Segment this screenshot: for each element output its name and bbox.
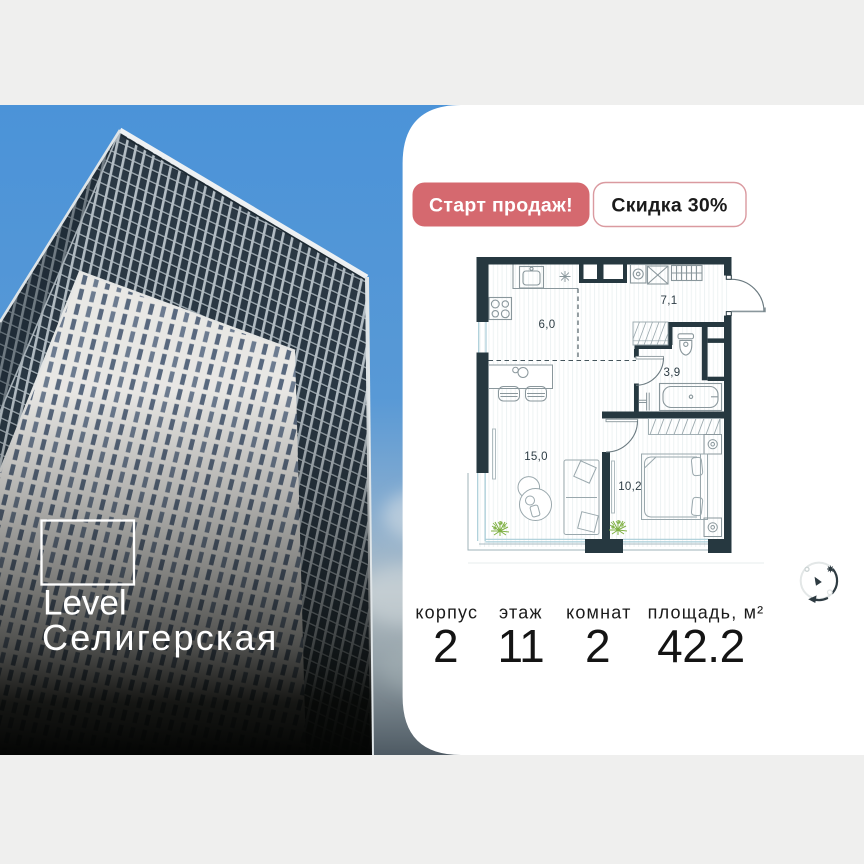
svg-text:2: 2 (433, 620, 458, 672)
svg-text:11: 11 (498, 620, 545, 672)
svg-text:15,0: 15,0 (524, 451, 548, 463)
svg-text:6,0: 6,0 (539, 319, 556, 331)
svg-text:10,2: 10,2 (618, 481, 642, 493)
svg-text:42.2: 42.2 (657, 620, 745, 672)
svg-text:7,1: 7,1 (661, 295, 678, 307)
svg-text:2: 2 (585, 620, 610, 672)
svg-text:Скидка 30%: Скидка 30% (611, 195, 727, 217)
svg-text:Селигерская: Селигерская (42, 617, 279, 658)
svg-text:Старт продаж!: Старт продаж! (429, 195, 573, 217)
svg-text:3,9: 3,9 (664, 367, 681, 379)
